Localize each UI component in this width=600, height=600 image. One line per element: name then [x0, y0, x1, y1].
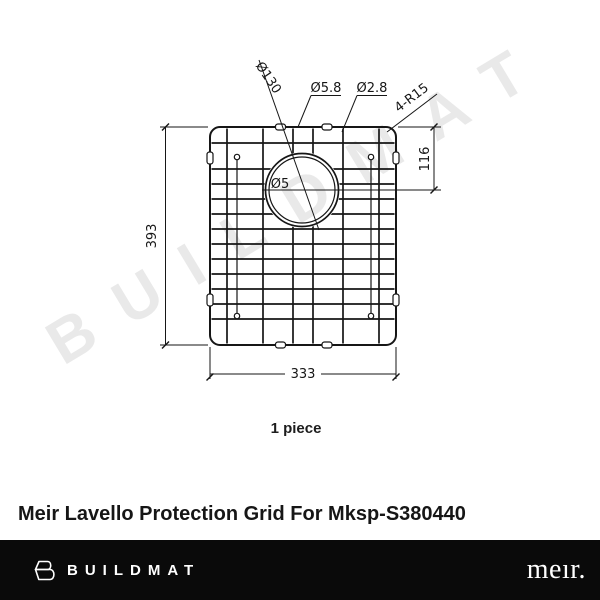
dim-label-corner-radius: 4-R15	[392, 81, 432, 116]
product-title: Meir Lavello Protection Grid For Mksp-S3…	[18, 503, 578, 526]
grid-feet	[234, 154, 373, 318]
dim-label-hole-offset: 116	[418, 147, 433, 172]
dim-label-width: 333	[291, 367, 316, 382]
dim-label-wire-major: Ø5.8	[311, 81, 342, 96]
buildmat-icon	[30, 557, 57, 584]
dim-label-center-hole: Ø5	[271, 177, 290, 192]
dim-label-wire-minor: Ø2.8	[357, 81, 388, 96]
quantity-label: 1 piece	[226, 420, 366, 437]
dim-label-hole-diameter: Ø130	[252, 59, 284, 96]
dim-label-height: 393	[145, 224, 160, 249]
buildmat-wordmark: BUILDMAT	[67, 562, 200, 579]
buildmat-logo: BUILDMAT	[30, 557, 200, 584]
grid-wires	[212, 129, 395, 344]
meir-wordmark: meır.	[527, 554, 586, 586]
footer-bar: BUILDMAT meır.	[0, 540, 600, 600]
